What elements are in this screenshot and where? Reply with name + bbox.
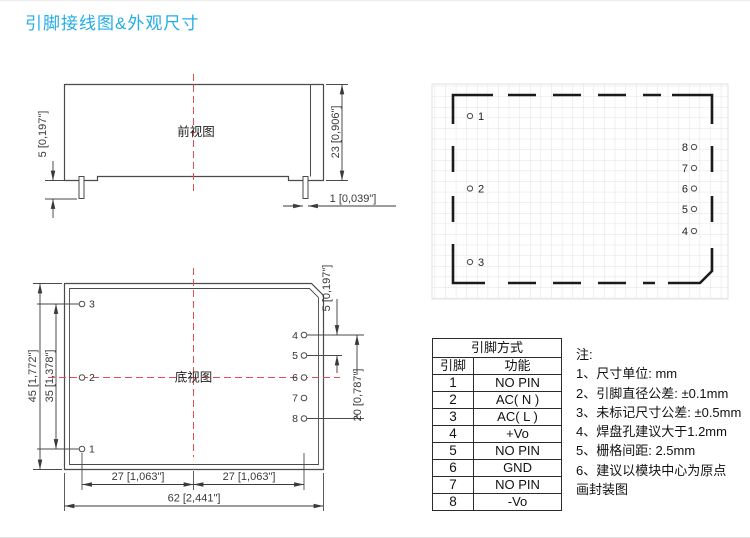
note-line: 1、尺寸单位: mm xyxy=(576,364,746,383)
bottom-half-width-right-dim: 27 [1,063"] xyxy=(223,471,276,483)
front-left-pin xyxy=(79,177,84,199)
pin-number-label: 7 xyxy=(682,163,688,175)
note-line: 3、未标记尺寸公差: ±0.5mm xyxy=(576,403,746,422)
pin-hole-marker xyxy=(301,395,307,401)
pin-number-label: 6 xyxy=(292,372,298,384)
pin-hole-marker xyxy=(301,416,307,422)
table-row: 2 AC( N ) xyxy=(433,392,562,409)
table-title: 引脚方式 xyxy=(433,339,562,358)
table-title-row: 引脚方式 xyxy=(433,339,562,358)
pin-hole-marker xyxy=(79,301,85,307)
pin-function-cell: NO PIN xyxy=(474,443,562,460)
front-right-pin xyxy=(303,177,308,199)
bottom-body-width-dim: 62 [2,441"] xyxy=(168,493,221,505)
table-row: 7 NO PIN xyxy=(433,477,562,494)
table-row: 4 +Vo xyxy=(433,426,562,443)
pin-hole-marker xyxy=(467,186,472,191)
bottom-body-height-dim: 45 [1,772"] xyxy=(27,350,39,403)
note-line: 4、焊盘孔建议大于1.2mm xyxy=(576,422,746,441)
bottom-view-label: 底视图 xyxy=(175,370,213,385)
pin-function-table: 引脚方式 引脚 功能 1 NO PIN 2 AC( N ) 3 AC( L ) … xyxy=(432,338,562,511)
pin-hole-marker xyxy=(301,353,307,359)
table-row: 8 -Vo xyxy=(433,494,562,511)
table-row: 1 NO PIN xyxy=(433,375,562,392)
pin-number-label: 8 xyxy=(682,142,688,154)
pin-function-cell: AC( N ) xyxy=(474,392,562,409)
pin-hole-marker xyxy=(301,332,307,338)
front-pin-diameter-dim: 1 [0,039"] xyxy=(330,193,377,205)
pin-number-cell: 1 xyxy=(433,375,474,392)
bottom-half-width-left-dim: 27 [1,063"] xyxy=(112,471,165,483)
pin-hole-marker xyxy=(79,446,85,452)
pin-number-label: 8 xyxy=(292,413,298,425)
pin-function-cell: GND xyxy=(474,460,562,477)
pin-function-cell: AC( L ) xyxy=(474,409,562,426)
table-row: 3 AC( L ) xyxy=(433,409,562,426)
pin-number-label: 5 xyxy=(292,350,298,362)
pin-hole-marker xyxy=(467,259,472,264)
pin-hole-marker xyxy=(691,165,696,170)
table-row: 6 GND xyxy=(433,460,562,477)
bottom-right-pin-pitch-dim: 5 [0,197"] xyxy=(321,265,333,312)
pin-number-cell: 4 xyxy=(433,426,474,443)
pin-number-label: 2 xyxy=(478,184,484,196)
pin-number-label: 3 xyxy=(89,299,95,311)
pin-function-cell: NO PIN xyxy=(474,375,562,392)
notes-block: 注: 1、尺寸单位: mm 2、引脚直径公差: ±0.1mm 3、未标记尺寸公差… xyxy=(576,345,746,499)
pin-function-cell: +Vo xyxy=(474,426,562,443)
pin-hole-marker xyxy=(79,375,85,381)
pin-hole-marker xyxy=(691,144,696,149)
bottom-right-pin-span-dim: 20 [0,787"] xyxy=(352,369,364,422)
front-body-height-dim: 23 [0,906"] xyxy=(330,106,342,159)
note-line: 2、引脚直径公差: ±0.1mm xyxy=(576,384,746,403)
pin-hole-marker xyxy=(691,228,696,233)
pin-number-cell: 5 xyxy=(433,443,474,460)
pin-number-label: 3 xyxy=(478,257,484,269)
column-header-function: 功能 xyxy=(474,358,562,375)
pin-number-label: 6 xyxy=(682,184,688,196)
bottom-left-pin-span-dim: 35 [1,378"] xyxy=(44,350,56,403)
pin-hole-marker xyxy=(691,186,696,191)
pin-number-label: 5 xyxy=(682,204,688,216)
pin-number-label: 7 xyxy=(292,393,298,405)
pin-number-cell: 8 xyxy=(433,494,474,511)
note-line: 画封装图 xyxy=(576,480,746,499)
column-header-pin: 引脚 xyxy=(433,358,474,375)
note-line: 6、建议以模块中心为原点 xyxy=(576,461,746,480)
pin-number-cell: 7 xyxy=(433,477,474,494)
pin-number-label: 2 xyxy=(89,372,95,384)
pin-number-cell: 2 xyxy=(433,392,474,409)
front-pin-length-dim: 5 [0,197"] xyxy=(37,111,49,158)
pin-hole-marker xyxy=(301,375,307,381)
pin-number-label: 1 xyxy=(478,111,484,123)
notes-title: 注: xyxy=(576,345,746,364)
pin-function-cell: NO PIN xyxy=(474,477,562,494)
pin-hole-marker xyxy=(467,113,472,118)
footprint-grid-drawing: 1 2 3 8 7 6 5 4 xyxy=(432,84,728,299)
pin-number-label: 4 xyxy=(292,330,298,342)
note-line: 5、栅格间距: 2.5mm xyxy=(576,441,746,460)
pin-number-label: 4 xyxy=(682,226,688,238)
pin-number-cell: 6 xyxy=(433,460,474,477)
pin-function-cell: -Vo xyxy=(474,494,562,511)
pin-number-label: 1 xyxy=(89,444,95,456)
front-view-label: 前视图 xyxy=(177,124,215,139)
front-view-drawing: 前视图 5 [0,197"] 23 [0,906"] 1 [0,039"] xyxy=(37,74,396,218)
datasheet-page: 引脚接线图&外观尺寸 前视图 5 [ xyxy=(0,0,750,538)
pin-number-cell: 3 xyxy=(433,409,474,426)
bottom-view-drawing: 底视图 3 2 1 4 5 6 7 8 xyxy=(27,265,364,511)
pin-hole-marker xyxy=(691,206,696,211)
table-row: 5 NO PIN xyxy=(433,443,562,460)
table-header-row: 引脚 功能 xyxy=(433,358,562,375)
